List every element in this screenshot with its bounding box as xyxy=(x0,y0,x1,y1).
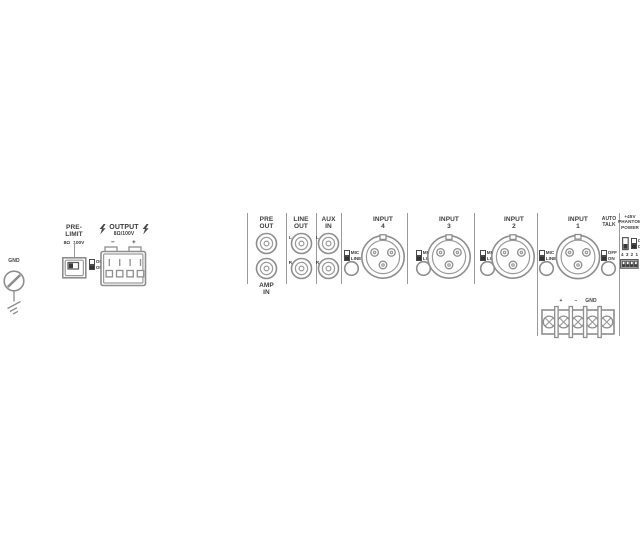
output-title: OUTPUT xyxy=(104,224,144,231)
pre-limit-pointer-line xyxy=(74,242,75,257)
input-3-label: INPUT 3 xyxy=(429,216,469,230)
input-4-mic-line-switch xyxy=(344,261,359,276)
dip-switch-numbers: 4 3 2 1 xyxy=(621,252,638,257)
speaker-output-terminal-icon xyxy=(100,246,148,288)
gnd-label: GND xyxy=(2,259,26,265)
divider xyxy=(474,213,475,284)
auto-talk-label: AUTO TALK xyxy=(598,217,620,228)
line-out-left-rca-jack xyxy=(290,232,313,255)
input-1-mic-line-switch xyxy=(539,261,554,276)
aux-in-right-rca-jack xyxy=(317,257,340,280)
input-1-xlr-connector xyxy=(555,234,601,280)
input-1-mic-line-labels: MIC LINE xyxy=(539,250,556,261)
output-impedance: 8Ω/100V xyxy=(104,232,144,238)
pre-limit-switch-icon xyxy=(62,257,87,279)
output-minus-label: − xyxy=(106,239,120,246)
phantom-power-slide-switch xyxy=(622,237,629,250)
auto-talk-off-on-labels: OFF ON xyxy=(601,250,617,261)
pre-limit-title: PRE- LIMIT xyxy=(54,224,94,238)
line-out-right-rca-jack xyxy=(290,257,313,280)
phantom-off-on-labels: OFF ON xyxy=(631,238,640,249)
dip-switch-block xyxy=(620,259,639,269)
pre-out-label: PRE OUT xyxy=(247,216,286,230)
output-plus-label: + xyxy=(127,239,141,246)
input-4-mic-line-labels: MIC LINE xyxy=(344,250,361,261)
auto-talk-switch xyxy=(601,261,616,276)
input-2-xlr-connector xyxy=(490,234,536,280)
ground-screw-icon xyxy=(2,270,26,316)
on-indicator-square xyxy=(89,265,95,271)
input-1-label: INPUT 1 xyxy=(558,216,598,230)
on-indicator-square xyxy=(631,244,637,250)
amp-in-rca-jack xyxy=(255,257,278,280)
aux-in-label: AUX IN xyxy=(316,216,341,230)
amplifier-rear-panel-diagram: GND PRE- LIMIT 8Ω 100V OFF ON OUTPUT 8Ω/… xyxy=(0,0,640,550)
input-4-xlr-connector xyxy=(360,234,406,280)
line-out-label: LINE OUT xyxy=(286,216,316,230)
aux-in-left-rca-jack xyxy=(317,232,340,255)
balanced-input-terminal-strip xyxy=(538,303,618,341)
phantom-power-label: +45V PHANTOM POWER xyxy=(618,214,640,230)
input-3-xlr-connector xyxy=(426,234,472,280)
divider xyxy=(341,213,342,284)
input-4-label: INPUT 4 xyxy=(363,216,403,230)
pre-out-rca-jack xyxy=(255,232,278,255)
divider xyxy=(407,213,408,284)
divider xyxy=(619,213,620,336)
input-2-label: INPUT 2 xyxy=(494,216,534,230)
amp-in-label: AMP IN xyxy=(247,282,286,296)
terminal-screws xyxy=(543,316,612,328)
